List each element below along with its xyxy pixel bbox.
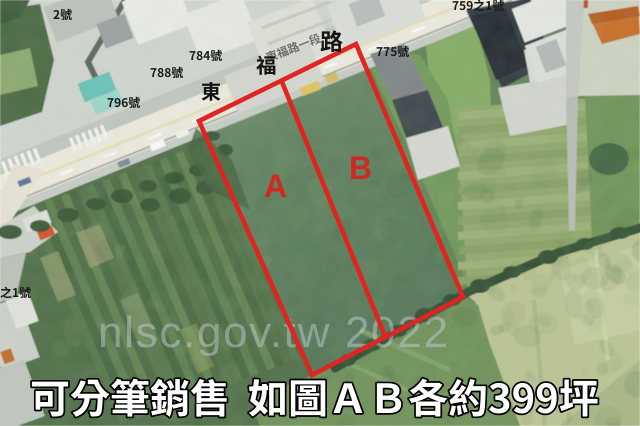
- svg-text:A: A: [264, 168, 287, 204]
- svg-text:B: B: [349, 150, 372, 186]
